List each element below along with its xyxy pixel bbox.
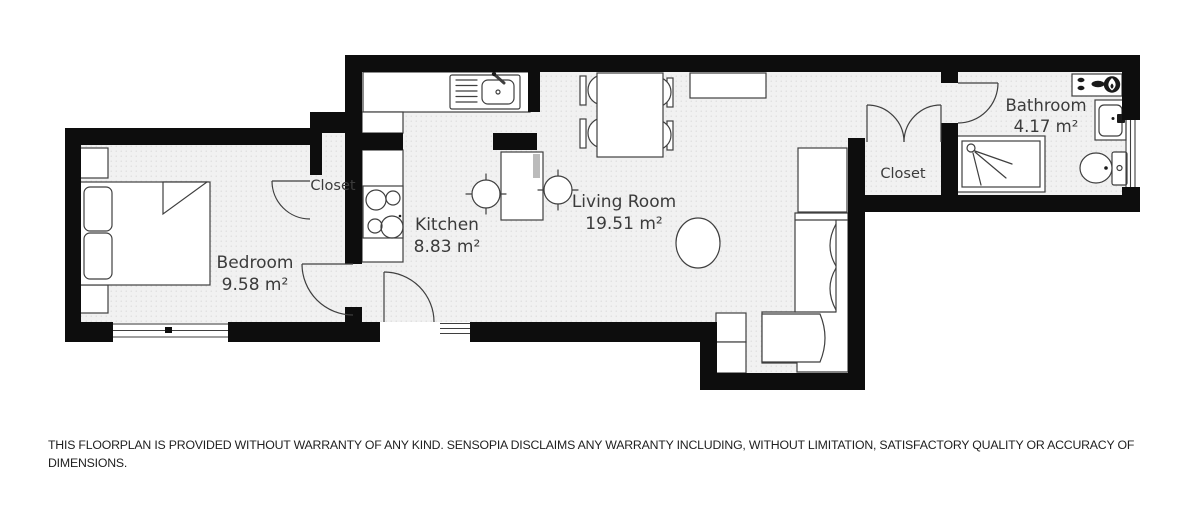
sink-drain-dot	[496, 90, 500, 94]
living-room-label: Living Room	[572, 192, 676, 212]
floorplan-page: Bedroom 9.58 m² Closet Kitchen 8.83 m² L…	[0, 0, 1200, 515]
bathroom-label: Bathroom	[1005, 96, 1086, 115]
flame-icon	[1104, 76, 1120, 92]
bedroom-label: Bedroom	[217, 253, 294, 273]
bedroom-window	[113, 324, 228, 337]
hall-closet-label: Closet	[880, 166, 925, 182]
disclaimer-line1: THIS FLOORPLAN IS PROVIDED WITHOUT WARRA…	[48, 436, 1134, 454]
kitchen-area: 8.83 m²	[414, 237, 481, 257]
corner-table	[716, 342, 746, 373]
pillow	[84, 233, 112, 279]
entry-window	[440, 324, 470, 334]
sideboard	[690, 73, 766, 98]
living-room-area: 19.51 m²	[585, 214, 662, 234]
corner-table	[716, 313, 746, 342]
faucet-icon	[492, 72, 496, 76]
bedroom-area: 9.58 m²	[222, 275, 289, 295]
bathroom-sink	[1095, 100, 1126, 140]
pillow	[84, 187, 112, 231]
disclaimer: THIS FLOORPLAN IS PROVIDED WITHOUT WARRA…	[48, 436, 1134, 472]
toilet	[1080, 152, 1127, 185]
kitchen-counter-left-upper	[362, 112, 403, 133]
nightstand-top	[78, 148, 108, 178]
high-table-accent	[533, 154, 540, 178]
sofa-side-table	[798, 148, 847, 212]
disclaimer-line2: DIMENSIONS.	[48, 454, 1134, 472]
dining-table	[597, 73, 663, 157]
nightstand-bottom	[80, 285, 108, 313]
kitchen-label: Kitchen	[415, 215, 479, 235]
round-table	[676, 218, 720, 268]
bathroom-area: 4.17 m²	[1014, 117, 1079, 136]
bedroom-closet-label: Closet	[310, 178, 355, 194]
shower	[957, 136, 1045, 192]
